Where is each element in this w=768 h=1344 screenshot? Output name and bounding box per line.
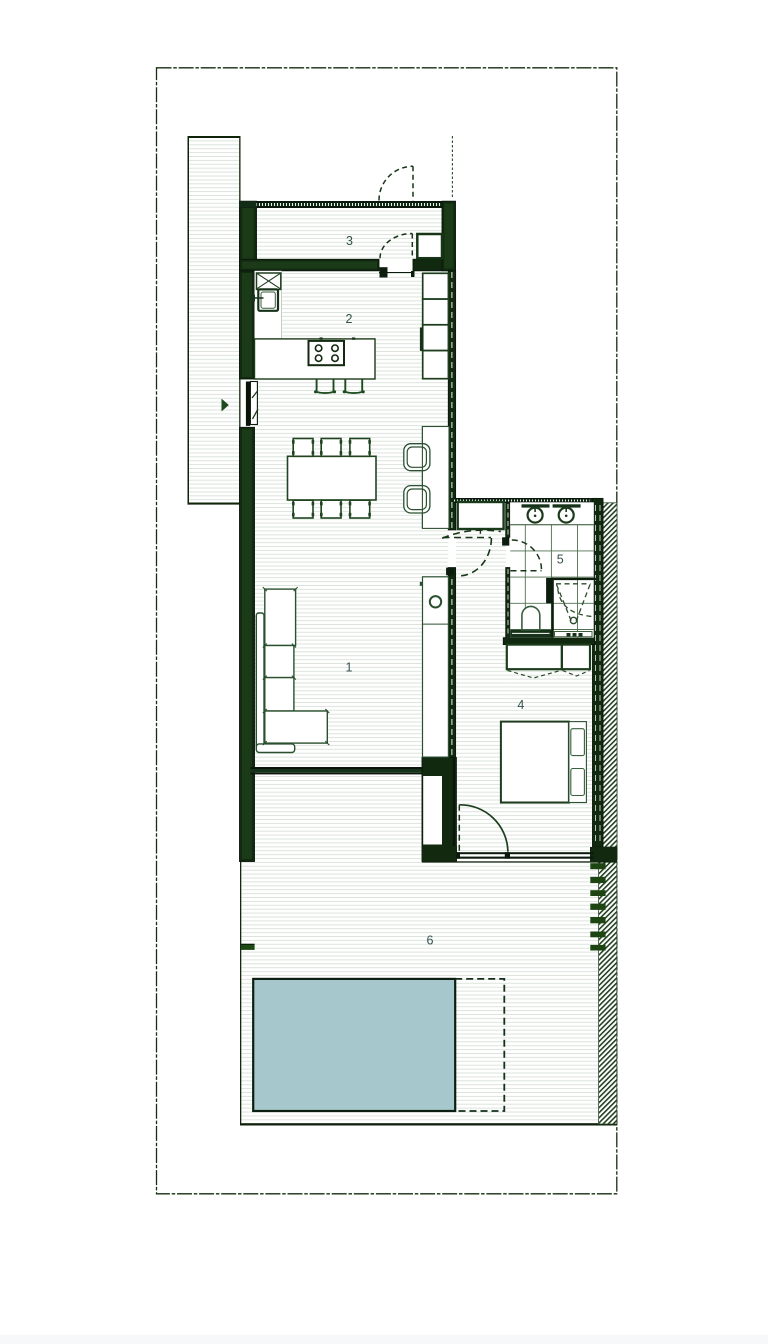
svg-text:2: 2 <box>346 312 353 326</box>
svg-text:6: 6 <box>427 934 434 948</box>
svg-text:1: 1 <box>346 661 353 675</box>
svg-text:5: 5 <box>557 553 564 567</box>
svg-text:3: 3 <box>346 234 353 248</box>
svg-text:4: 4 <box>517 698 524 712</box>
